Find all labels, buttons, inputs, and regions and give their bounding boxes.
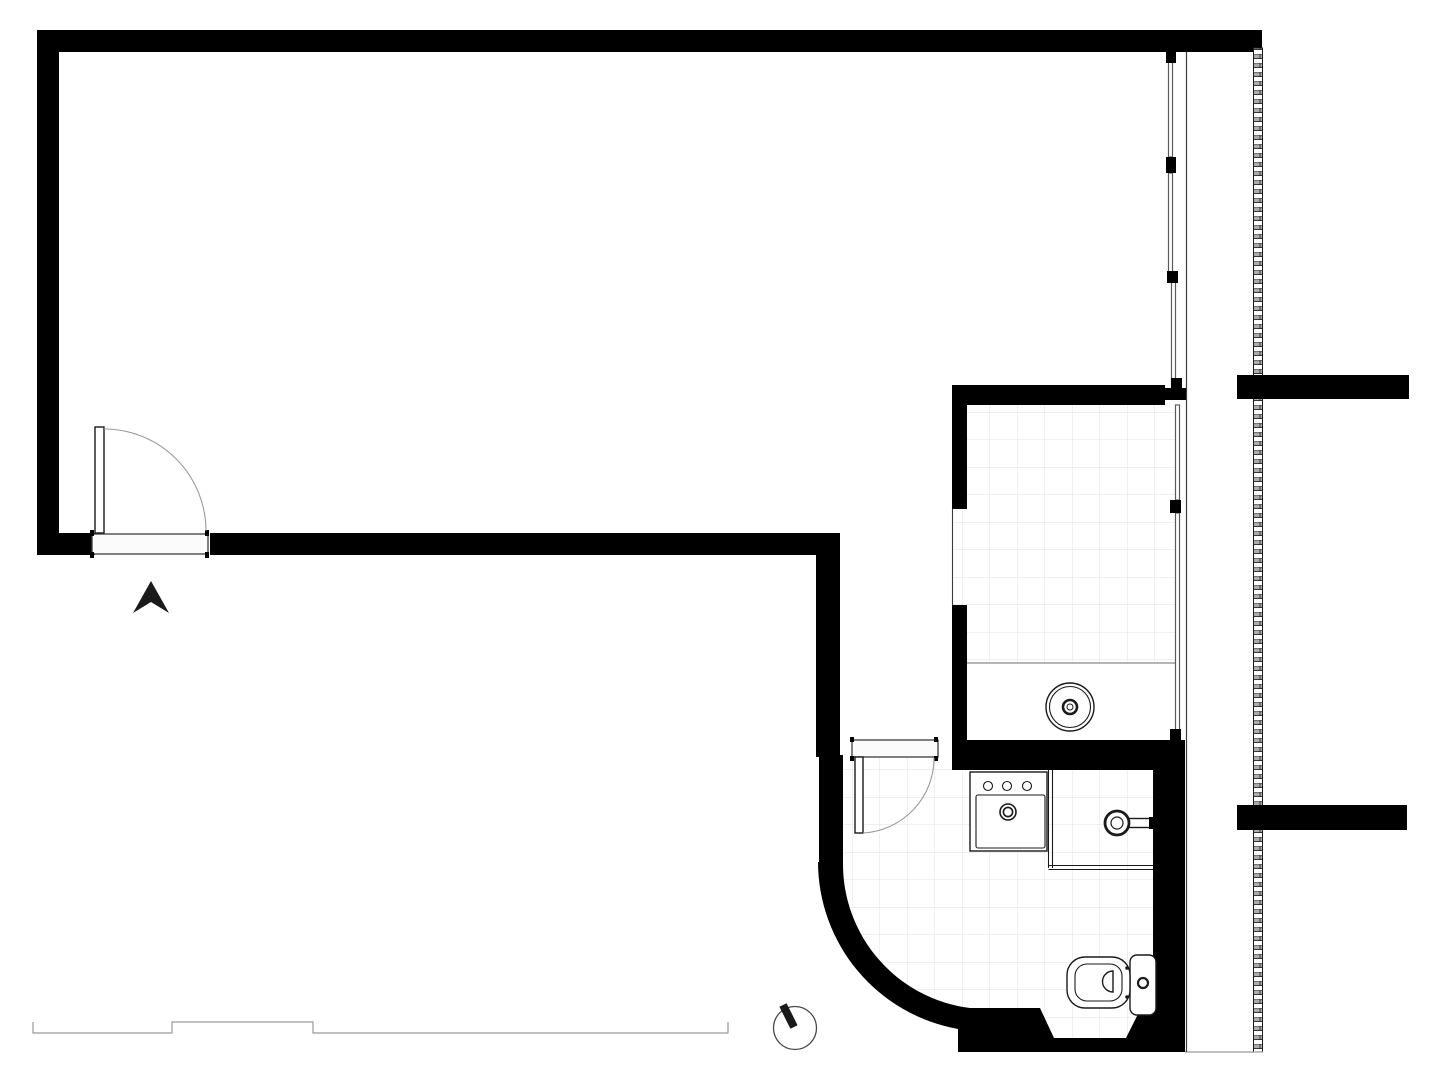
entry-jamb-tl [90,530,94,536]
party-wall-stub-lower-overlay [1237,805,1407,830]
glass-panel-2 [1169,173,1173,272]
hallway-wall [816,533,840,757]
terrace-step-edge [33,1022,728,1033]
mullion-5 [1170,500,1181,513]
glass-panel-3 [1172,282,1176,385]
column-circle [774,1007,817,1050]
entry-jamb-br [205,552,209,558]
mullion-2 [1166,157,1176,173]
bottom-wall-left-of-door [37,533,95,555]
entry-jamb-bl [90,552,94,558]
top-exterior-wall [37,30,1262,52]
toilet-bowl-outer [1067,957,1130,1008]
wall-layer [37,30,1409,1052]
entry-door-threshold [92,534,208,554]
washbasin [970,772,1047,851]
floor-plan-sheet [0,0,1440,1080]
mullion-4 [1171,378,1182,391]
toilet-bolt-bottom [1125,995,1129,999]
glass-panel-1 [1169,62,1173,157]
mullion-1 [1166,52,1176,63]
toilet-flush-button [1138,978,1148,988]
bathroom-door-threshold [852,740,938,757]
toilet-bolt-top [1125,966,1129,970]
bath-jamb-br [934,756,938,761]
bathroom-door-leaf [855,757,863,833]
left-exterior-wall [37,30,59,555]
kitchen-top-wall [952,385,1165,405]
shower-mixer-bar [1128,819,1152,828]
shower-mixer-dial [1105,811,1129,835]
mullion-3 [1167,271,1178,283]
shower-mixer-wall-mount [1149,817,1155,829]
toilet [1067,955,1156,1015]
bath-jamb-bl [850,756,854,761]
entry-door-leaf [95,427,104,533]
column-marker [774,1005,817,1050]
glass-panel-4 [1176,405,1180,500]
mullion-6 [1170,729,1181,742]
party-wall-stub-upper-overlay [1237,375,1409,399]
kitchen-left-wall-upper [952,385,967,509]
kitchen-passthrough-tiles [952,509,967,605]
bottom-wall-main [210,533,837,555]
entrance-arrow-icon [133,581,169,613]
kitchen-tiled-floor [967,405,1176,663]
entry-door-swing-arc [104,429,206,531]
floor-plan-canvas [0,0,1440,1080]
floor-layer [843,405,1176,1038]
kitchen-fixtures [1046,683,1094,731]
kitchen-sink-drain [1063,700,1077,714]
entry-door [90,427,209,613]
bath-jamb-tl [850,737,854,742]
bathroom-left-wall [819,755,843,865]
hatched-existing-wall [1254,48,1263,1052]
bath-jamb-tr [934,737,938,742]
bathroom-right-wall [1153,770,1185,1052]
kitchen-bathroom-party-wall [952,740,1185,770]
glass-panel-5 [1176,513,1180,730]
washbasin-drain-outer [1000,804,1016,820]
kitchen-left-wall-lower [952,605,967,740]
